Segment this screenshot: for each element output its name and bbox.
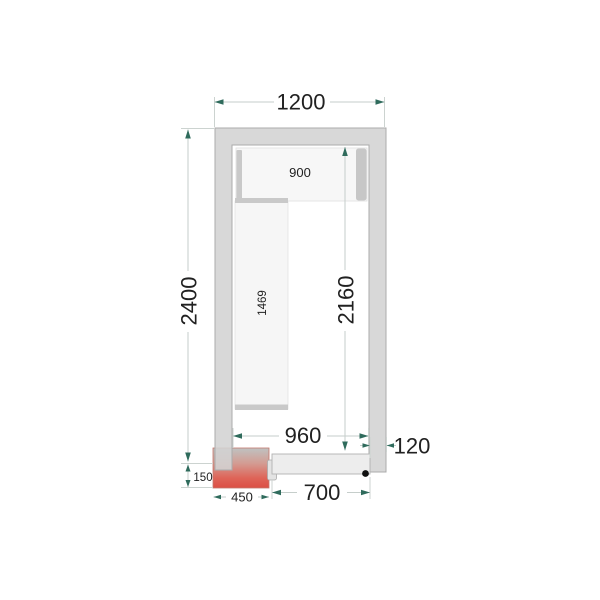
dim-unit-width-label: 450 bbox=[231, 490, 253, 505]
dim-outer-width: 1200 bbox=[215, 90, 385, 128]
floorplan-canvas: 900 1469 1200 2400 2160 960 bbox=[0, 0, 600, 600]
dim-wall-thickness-label: 120 bbox=[394, 434, 431, 459]
dim-inner-width: 960 bbox=[233, 423, 369, 450]
shelf-side-bottom-rail bbox=[235, 405, 288, 411]
shelf-top-left-rail bbox=[237, 150, 243, 200]
shelf-top-length-label: 900 bbox=[289, 165, 311, 180]
arrow-left-icon bbox=[233, 433, 242, 438]
dim-unit-protrusion-label: 150 bbox=[193, 472, 212, 484]
shelf-side-top-rail bbox=[235, 198, 288, 203]
arrow-left-icon bbox=[215, 99, 224, 104]
dim-door-width: 700 bbox=[272, 477, 370, 505]
door-leaf bbox=[272, 454, 370, 474]
dim-outer-depth-label: 2400 bbox=[177, 277, 202, 326]
dim-inner-width-label: 960 bbox=[285, 423, 322, 448]
door bbox=[268, 454, 371, 480]
arrow-up-icon bbox=[186, 465, 191, 472]
door-hinge-dot-icon bbox=[362, 470, 369, 477]
arrow-down-icon bbox=[342, 442, 348, 451]
arrow-down-icon bbox=[186, 480, 191, 487]
arrow-right-icon bbox=[376, 99, 385, 104]
shelf-side: 1469 bbox=[235, 198, 288, 410]
arrow-down-icon bbox=[185, 453, 191, 462]
dim-outer-width-label: 1200 bbox=[277, 90, 326, 115]
dim-unit-protrusion: 150 bbox=[181, 465, 213, 488]
arrow-right-icon bbox=[262, 495, 270, 499]
dim-unit-width: 450 bbox=[214, 490, 270, 505]
dim-inner-depth-label: 2160 bbox=[334, 276, 359, 325]
arrow-right-icon bbox=[361, 490, 370, 495]
arrow-up-icon bbox=[185, 130, 191, 139]
shelf-top-right-rail bbox=[356, 149, 367, 201]
arrow-left-icon bbox=[214, 495, 222, 499]
arrow-left-icon bbox=[272, 490, 281, 495]
dim-outer-depth: 2400 bbox=[177, 129, 215, 464]
floorplan-page: 900 1469 1200 2400 2160 960 bbox=[0, 0, 600, 600]
dim-door-width-label: 700 bbox=[304, 480, 341, 505]
shelf-side-length-label: 1469 bbox=[257, 290, 269, 316]
arrow-right-icon bbox=[360, 433, 369, 438]
